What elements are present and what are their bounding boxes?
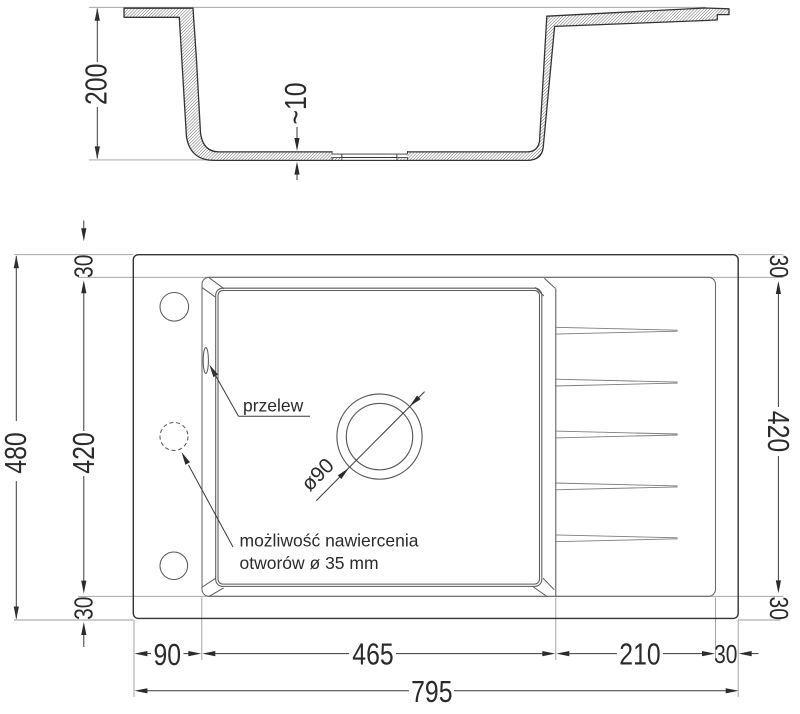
svg-text:możliwość nawiercenia: możliwość nawiercenia [240, 531, 419, 551]
svg-text:795: 795 [411, 675, 452, 709]
svg-text:30: 30 [69, 255, 97, 278]
svg-text:90: 90 [154, 638, 182, 672]
svg-text:420: 420 [761, 411, 795, 452]
svg-text:30: 30 [714, 640, 737, 668]
svg-text:210: 210 [619, 637, 660, 671]
svg-text:30: 30 [764, 255, 792, 278]
svg-text:~10: ~10 [279, 82, 313, 124]
svg-text:przelew: przelew [243, 396, 304, 416]
svg-text:otworów ø 35 mm: otworów ø 35 mm [240, 553, 379, 573]
svg-text:420: 420 [67, 432, 101, 473]
svg-text:30: 30 [70, 597, 98, 620]
svg-text:30: 30 [764, 597, 792, 620]
svg-text:200: 200 [79, 64, 113, 105]
svg-text:480: 480 [0, 432, 33, 473]
svg-text:465: 465 [352, 637, 393, 671]
